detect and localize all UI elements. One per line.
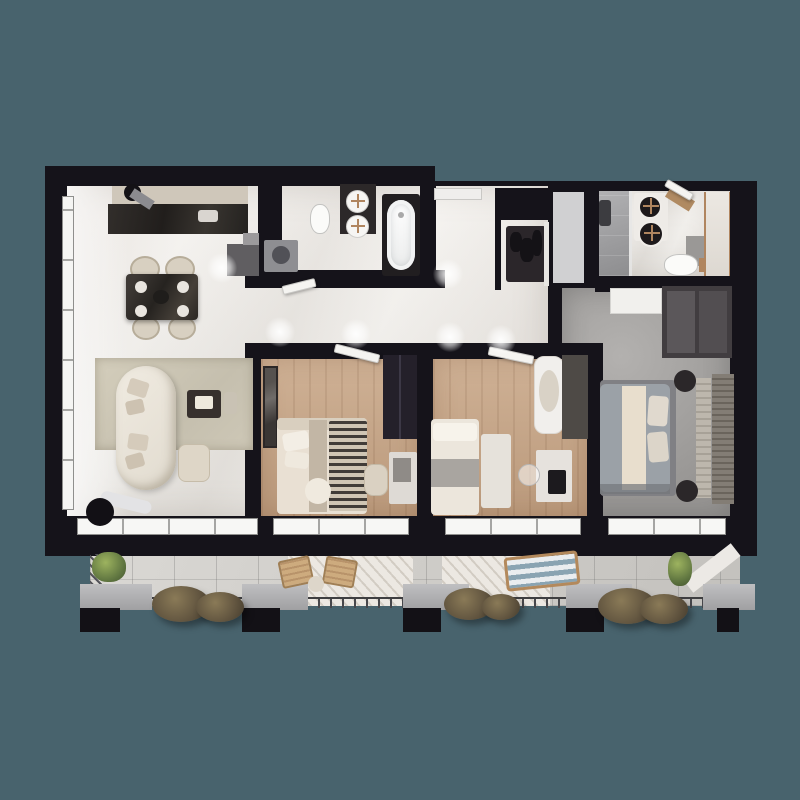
bench-front-4 bbox=[566, 608, 604, 632]
planter-green-right bbox=[668, 552, 692, 586]
faucet-b2b-v bbox=[651, 225, 653, 241]
toilet-bath1 bbox=[310, 204, 330, 234]
bedroom1-wardrobe-line bbox=[399, 355, 401, 439]
bench-front-5 bbox=[717, 608, 739, 632]
washer-door bbox=[272, 246, 290, 264]
kitchen-counter bbox=[108, 204, 248, 234]
bedroom1-mirror bbox=[393, 458, 411, 482]
master-pillow-1 bbox=[647, 395, 669, 426]
master-bed-foot-shadow bbox=[600, 484, 670, 494]
bush-6 bbox=[640, 594, 688, 624]
nightstand-2 bbox=[676, 480, 698, 502]
bench-front-2 bbox=[242, 608, 280, 632]
toilet-bath2 bbox=[664, 254, 698, 276]
plate-1 bbox=[135, 281, 147, 293]
bench-top-1 bbox=[80, 584, 152, 610]
floor-lamp-base bbox=[86, 498, 114, 526]
spotlight-6 bbox=[433, 259, 463, 289]
window-wall-left bbox=[62, 196, 74, 510]
bed2-blanket bbox=[431, 459, 479, 487]
master-pillow-2 bbox=[647, 431, 670, 463]
coffee-table-tray bbox=[195, 396, 213, 409]
window-master-south bbox=[608, 518, 726, 535]
window-bedroom1-south bbox=[273, 518, 409, 535]
hall-shelf bbox=[544, 222, 549, 286]
spotlight-2 bbox=[265, 317, 295, 347]
bed1-striped-throw bbox=[329, 421, 367, 511]
bassinet-oval bbox=[539, 370, 559, 412]
sofa-pillow-3 bbox=[127, 433, 149, 452]
planter-green-left bbox=[92, 552, 126, 582]
bath2-wall-trim bbox=[704, 192, 730, 276]
bench-top-2 bbox=[242, 584, 308, 610]
faucet-b2a-v bbox=[650, 198, 652, 214]
kitchen-sink bbox=[198, 210, 218, 222]
bedroom1-artwork bbox=[263, 366, 278, 448]
top-wall-notch bbox=[435, 166, 757, 181]
bedroom1-armchair bbox=[364, 464, 388, 496]
wall-master-upper-left bbox=[548, 276, 562, 346]
spotlight-1 bbox=[207, 253, 237, 283]
entry-door bbox=[434, 188, 482, 200]
bush-4 bbox=[482, 594, 520, 620]
bench-front-1 bbox=[80, 608, 120, 632]
floor-plan bbox=[0, 0, 800, 800]
ghost-chair bbox=[518, 464, 540, 486]
spotlight-3 bbox=[341, 319, 371, 349]
master-wardrobe-panel-2 bbox=[699, 291, 727, 353]
bathtub bbox=[387, 200, 415, 270]
laptop bbox=[548, 470, 566, 494]
side-stool bbox=[224, 392, 237, 414]
ottoman bbox=[178, 444, 210, 482]
coat-3 bbox=[532, 230, 542, 256]
wall-nook-top bbox=[500, 188, 551, 220]
master-dresser bbox=[610, 288, 662, 314]
balcony-wood-chair-2 bbox=[322, 555, 358, 588]
master-bed-runner bbox=[622, 386, 646, 490]
bench-top-5 bbox=[703, 584, 755, 610]
bathtub-drain bbox=[398, 212, 404, 218]
bush-2 bbox=[196, 592, 244, 622]
bed1-fur-pouf bbox=[305, 478, 331, 504]
master-headboard bbox=[696, 378, 711, 498]
plate-4 bbox=[177, 305, 189, 317]
shower-glass bbox=[629, 191, 632, 276]
bench-front-3 bbox=[403, 608, 441, 632]
bed1-pillow-2 bbox=[284, 451, 310, 470]
window-bedroom2-south bbox=[445, 518, 581, 535]
table-centerpiece bbox=[153, 290, 169, 304]
spotlight-5 bbox=[486, 325, 516, 355]
plate-2 bbox=[177, 281, 189, 293]
nightstand-1 bbox=[674, 370, 696, 392]
master-media-panel bbox=[712, 374, 734, 504]
spotlight-4 bbox=[435, 322, 465, 352]
hall-gray-panel bbox=[553, 192, 584, 283]
bedroom2-wardrobe bbox=[562, 355, 588, 439]
balcony-side-table bbox=[308, 576, 324, 592]
wall-hall-bath2 bbox=[585, 181, 599, 283]
plate-3 bbox=[135, 305, 147, 317]
floor-plan-render bbox=[0, 0, 800, 800]
bedroom2-rug bbox=[481, 434, 511, 508]
kitchen-cabinet-top bbox=[243, 233, 259, 245]
bed2-pillows bbox=[433, 423, 477, 441]
master-wardrobe-panel-1 bbox=[667, 291, 695, 353]
faucet-b1a-v bbox=[357, 194, 359, 208]
faucet-b1b-v bbox=[357, 219, 359, 233]
shower-towel bbox=[599, 200, 611, 226]
